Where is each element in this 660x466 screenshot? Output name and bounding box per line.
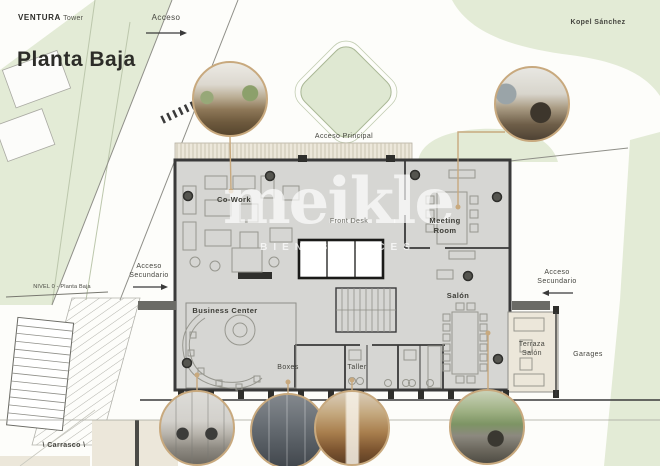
project-brand: VENTURA Tower	[18, 13, 83, 22]
salon-photo-inset	[449, 389, 525, 465]
salon-label: Salón	[447, 291, 469, 301]
floor-plan-page: VENTURA Tower Acceso Planta Baja Kopel S…	[0, 0, 660, 466]
carrasco-label: \ Carrasco \	[43, 441, 86, 450]
page-title: Planta Baja	[17, 48, 136, 72]
acceso-secundario-left-label: Acceso Secundario	[129, 262, 168, 281]
acceso-secundario-right-label: Acceso Secundario	[537, 268, 576, 287]
architect-name: Kopel Sánchez	[571, 18, 626, 27]
taller-label: Taller	[347, 363, 366, 372]
garages-label: Garages	[573, 350, 603, 359]
business-center-photo-inset	[159, 390, 235, 466]
taller-photo-inset	[314, 390, 390, 466]
acceso-label: Acceso	[152, 13, 181, 24]
project-name: VENTURA	[18, 13, 61, 22]
project-suffix: Tower	[63, 15, 83, 22]
meeting-room-label: Meeting Room	[429, 216, 460, 236]
business-center-label: Business Center	[192, 306, 257, 316]
terraza-salon-label: Terraza Salón	[519, 340, 545, 359]
cowork-label: Co-Work	[217, 195, 251, 205]
exterior-stairs-and-ramp	[0, 292, 178, 466]
meeting-room-photo-inset	[494, 66, 570, 142]
cowork-photo-inset	[192, 61, 268, 137]
acceso-principal-label: Acceso Principal	[315, 132, 373, 141]
nivel-label: NIVEL 0 - Planta Baja	[33, 284, 91, 291]
front-desk-label: Front Desk	[330, 217, 368, 226]
boxes-label: Boxes	[277, 363, 298, 372]
